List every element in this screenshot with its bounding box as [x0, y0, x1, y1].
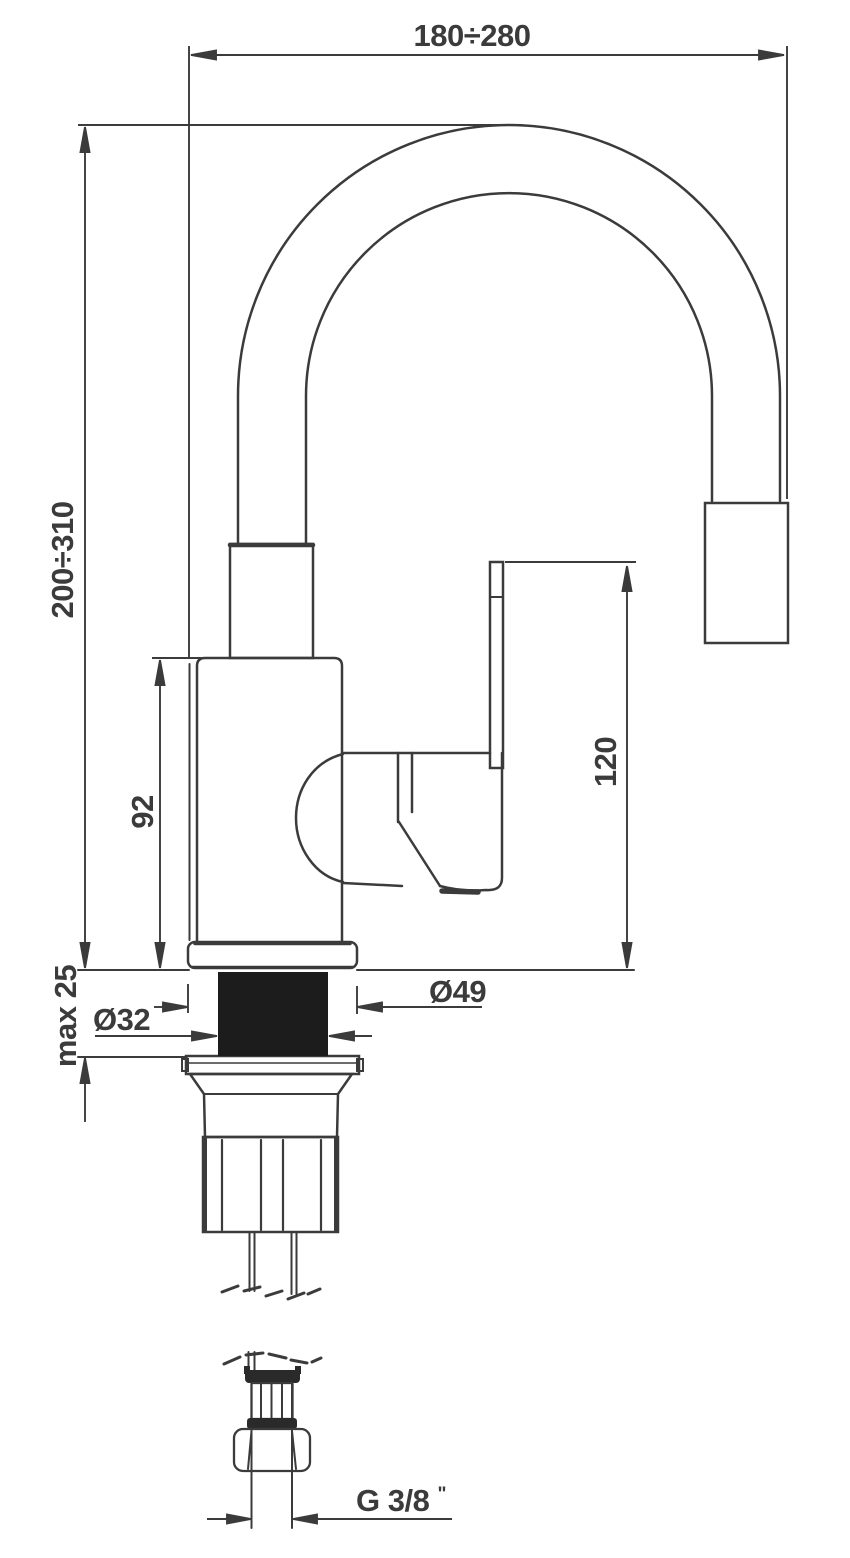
faucet-technical-drawing: 180÷280 200÷310 92 120 max 25 Ø32 Ø49 G … [0, 0, 850, 1558]
label-base-diameter: Ø49 [429, 974, 486, 1009]
label-hole-diameter: Ø32 [93, 1002, 150, 1037]
drawing-canvas: 180÷280 200÷310 92 120 max 25 Ø32 Ø49 G … [0, 0, 850, 1558]
sheet-background [0, 0, 850, 1558]
label-spout-height: 200÷310 [45, 502, 80, 619]
label-thread: G 3/8 " [356, 1483, 446, 1518]
label-body-height: 92 [125, 795, 160, 828]
label-thread-size: G 3/8 [356, 1483, 430, 1518]
countertop-section [218, 972, 328, 1056]
label-deck-thickness: max 25 [48, 965, 83, 1067]
label-thread-unit: " [437, 1484, 446, 1505]
handle-underline [442, 891, 478, 892]
label-handle-height: 120 [588, 737, 623, 787]
label-spout-reach: 180÷280 [414, 18, 531, 53]
connector-band [247, 1418, 297, 1429]
crimp-collar [245, 1370, 300, 1383]
